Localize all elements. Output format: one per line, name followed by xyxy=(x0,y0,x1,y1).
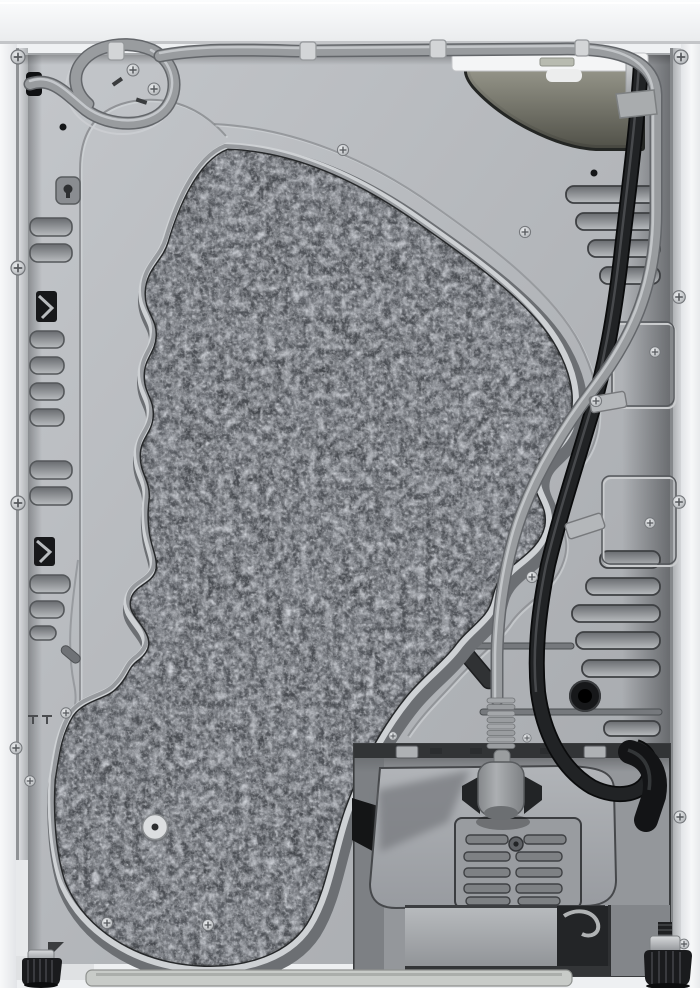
plug-face xyxy=(484,806,518,820)
screw-icon xyxy=(673,496,686,509)
screw-icon xyxy=(25,776,36,787)
bottom-drawer xyxy=(405,905,670,976)
screw-icon xyxy=(519,226,530,237)
panel-hole xyxy=(591,170,598,177)
screw-icon xyxy=(11,50,25,64)
screw-icon xyxy=(645,518,656,529)
screw-icon xyxy=(674,811,686,823)
screw-icon xyxy=(674,50,688,64)
screw-icon xyxy=(590,395,601,406)
panel-left-shadow xyxy=(28,55,42,962)
screw-icon xyxy=(10,742,22,754)
cable-grommet xyxy=(569,680,601,712)
strain-relief-bracket xyxy=(616,90,657,118)
screw-icon xyxy=(650,347,661,358)
panel-hole xyxy=(60,124,67,131)
keyhole-slot xyxy=(56,177,80,204)
screw-icon xyxy=(61,708,72,719)
screw-icon xyxy=(11,261,25,275)
screw-icon xyxy=(148,83,160,95)
dryer-rear-photo xyxy=(0,0,700,988)
condenser-grille xyxy=(455,818,581,908)
base-strip xyxy=(86,970,572,986)
screw-icon xyxy=(11,496,25,510)
screw-icon xyxy=(202,919,213,930)
screw-icon xyxy=(101,917,112,928)
cover-slot xyxy=(540,58,574,66)
screw-icon xyxy=(673,291,686,304)
screw-icon xyxy=(337,144,348,155)
side-frame-right xyxy=(670,44,700,988)
dryer-rear-illustration xyxy=(0,0,700,988)
screw-icon xyxy=(679,939,689,949)
screw-icon xyxy=(526,571,537,582)
screw-icon xyxy=(389,732,397,740)
screw-icon xyxy=(127,64,139,76)
cover-tab xyxy=(546,69,582,82)
screw-icon xyxy=(523,734,531,742)
pad-center-plug xyxy=(141,814,169,842)
drawer-front xyxy=(405,908,557,972)
